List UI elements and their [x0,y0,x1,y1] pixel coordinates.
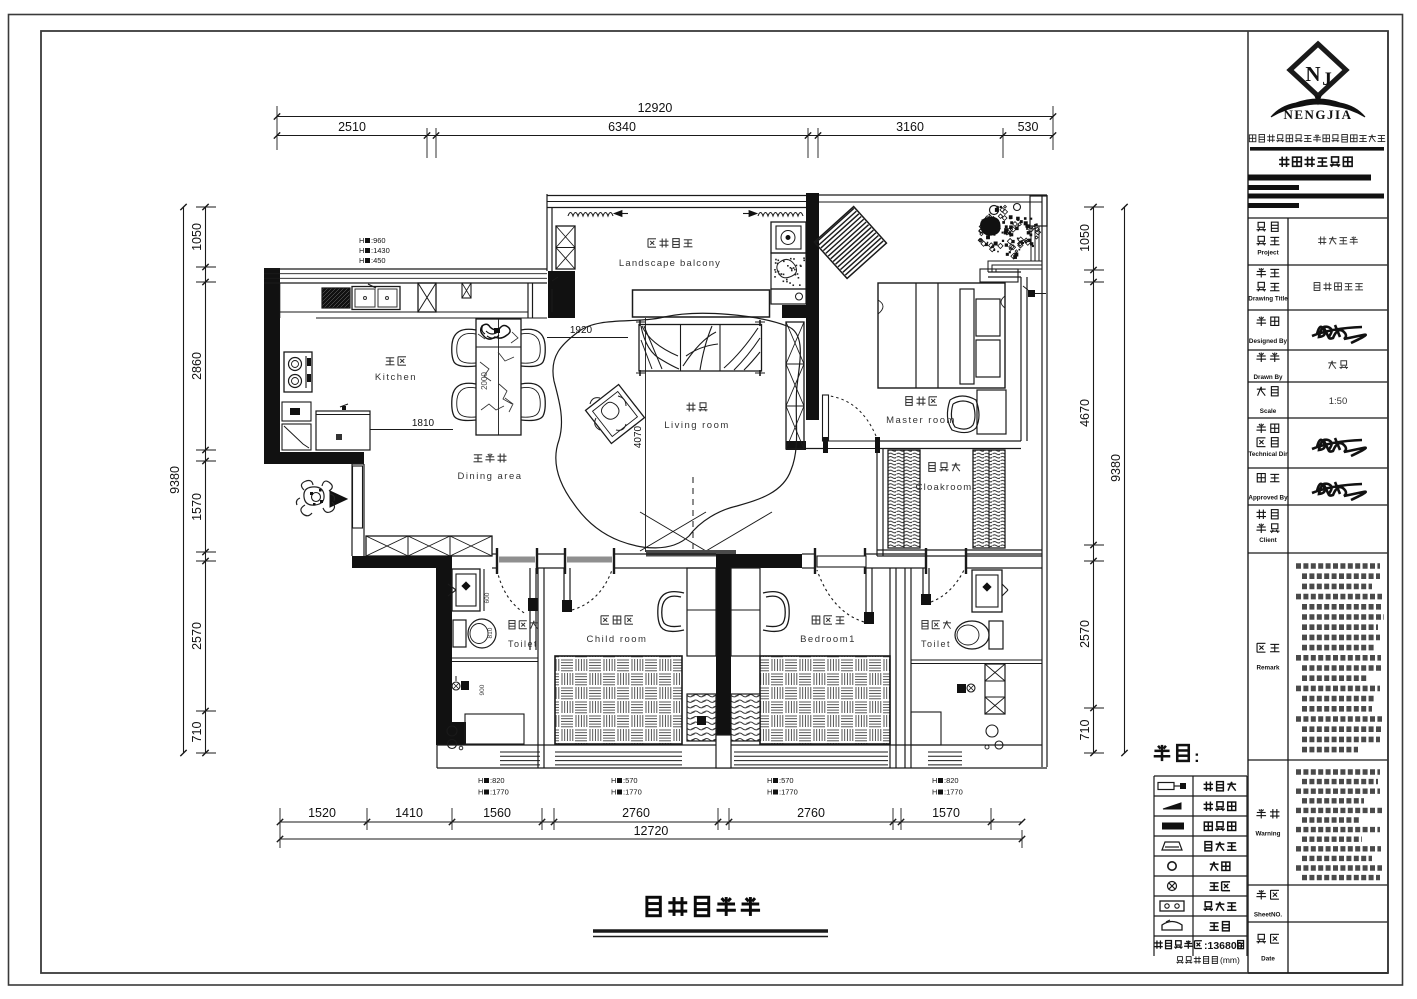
svg-text:1520: 1520 [308,806,336,820]
svg-text:2860: 2860 [190,352,204,380]
svg-text::1430: :1430 [371,246,390,255]
svg-text:H: H [359,256,364,265]
svg-text:810: 810 [487,627,494,638]
svg-text:1570: 1570 [190,493,204,521]
svg-text:Warning: Warning [1256,831,1281,838]
svg-text:Bedroom1: Bedroom1 [800,634,856,645]
svg-text:Landscape balcony: Landscape balcony [619,258,721,269]
svg-text:3160: 3160 [896,120,924,134]
svg-text:Drawn By: Drawn By [1253,374,1283,381]
svg-text:1050: 1050 [190,223,204,251]
svg-text:SheetNO.: SheetNO. [1254,912,1283,919]
svg-text:(mm): (mm) [1220,955,1240,965]
svg-text:2000: 2000 [480,372,489,390]
svg-text::820: :820 [490,776,505,785]
svg-text:H: H [478,776,483,785]
svg-text:Living room: Living room [664,420,730,431]
svg-text:2760: 2760 [797,806,825,820]
svg-text:J: J [1322,69,1332,90]
svg-text:1920: 1920 [570,325,593,336]
svg-text:4070: 4070 [633,425,644,448]
svg-text:1810: 1810 [412,418,435,429]
svg-text::450: :450 [371,256,386,265]
svg-text:Toilet: Toilet [921,639,951,649]
svg-text:Designed By: Designed By [1249,338,1288,345]
svg-text::1770: :1770 [779,788,798,797]
svg-text:1410: 1410 [395,806,423,820]
svg-text::820: :820 [944,776,959,785]
svg-text:H: H [478,788,483,797]
svg-text::1770: :1770 [490,788,509,797]
svg-text:9380: 9380 [1109,454,1123,482]
svg-text:530: 530 [1018,120,1039,134]
svg-text::1770: :1770 [623,788,642,797]
svg-text:N: N [1305,62,1320,86]
svg-text:Date: Date [1261,956,1275,963]
svg-text:H: H [767,776,772,785]
svg-text:Project: Project [1257,250,1279,257]
svg-text:710: 710 [1078,720,1092,741]
svg-text:12920: 12920 [638,101,673,115]
svg-text:2570: 2570 [1078,620,1092,648]
svg-text:1570: 1570 [932,806,960,820]
svg-text:1:50: 1:50 [1329,396,1348,407]
svg-text:710: 710 [190,722,204,743]
svg-text::960: :960 [371,236,386,245]
svg-text:Approved By: Approved By [1248,495,1288,502]
svg-text:H: H [611,788,616,797]
svg-text:Kitchen: Kitchen [375,372,417,383]
svg-text:Dining area: Dining area [457,471,522,482]
svg-text::570: :570 [623,776,638,785]
svg-text:NENGJIA: NENGJIA [1283,107,1352,122]
svg-text:H: H [932,776,937,785]
svg-text:Technical Dir: Technical Dir [1248,451,1288,458]
svg-text:H: H [932,788,937,797]
svg-text:6340: 6340 [608,120,636,134]
svg-text:2760: 2760 [622,806,650,820]
svg-text:Cloakroom: Cloakroom [916,482,973,493]
svg-text::1770: :1770 [944,788,963,797]
svg-text:H: H [359,236,364,245]
svg-text:H: H [611,776,616,785]
svg-text::: : [1194,747,1200,766]
svg-text:Client: Client [1259,537,1277,544]
svg-text:H: H [359,246,364,255]
svg-text:Master room: Master room [886,415,956,426]
svg-text:900: 900 [479,684,486,695]
svg-text:2570: 2570 [190,622,204,650]
svg-text:12720: 12720 [634,824,669,838]
svg-text:Scale: Scale [1260,408,1277,415]
svg-text:H: H [767,788,772,797]
svg-text:1050: 1050 [1078,224,1092,252]
svg-text:Toilet: Toilet [508,639,538,649]
svg-text:1560: 1560 [483,806,511,820]
svg-text:Remark: Remark [1256,665,1280,672]
svg-text:Child room: Child room [587,634,648,645]
svg-text:600: 600 [484,592,491,603]
svg-text::136800: :136800 [1204,940,1243,952]
svg-text:2510: 2510 [338,120,366,134]
svg-text:9380: 9380 [168,466,182,494]
svg-text:Drawing Title: Drawing Title [1248,296,1288,303]
svg-text:4670: 4670 [1078,399,1092,427]
svg-text::570: :570 [779,776,794,785]
